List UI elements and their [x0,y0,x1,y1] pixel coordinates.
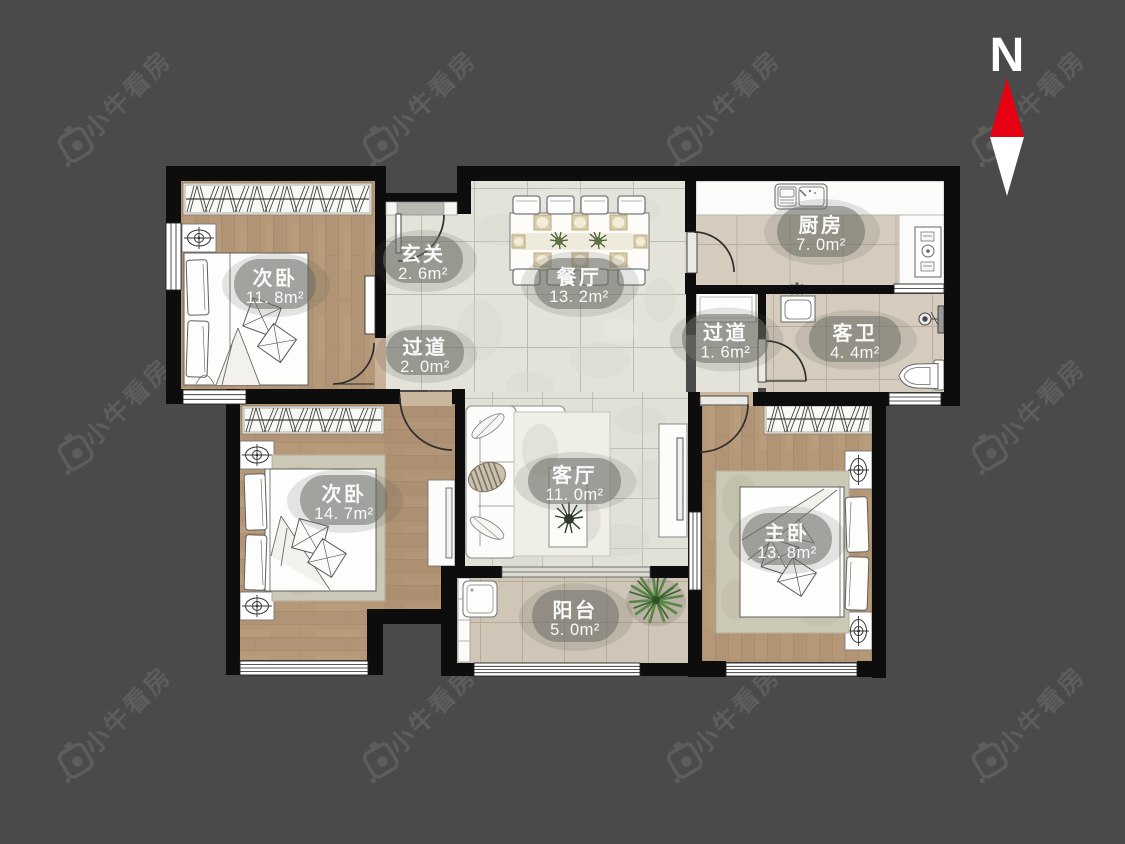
svg-text:餐厅: 餐厅 [557,265,602,289]
svg-text:过道: 过道 [403,335,448,359]
svg-text:1. 6m²: 1. 6m² [701,344,751,362]
svg-text:N: N [990,29,1025,82]
svg-text:阳台: 阳台 [553,598,598,622]
svg-text:厨房: 厨房 [799,213,844,237]
svg-text:11. 0m²: 11. 0m² [545,486,603,504]
svg-text:次卧: 次卧 [253,266,298,290]
svg-text:4. 4m²: 4. 4m² [830,344,880,362]
svg-text:过道: 过道 [703,321,748,345]
svg-text:5. 0m²: 5. 0m² [550,621,600,639]
svg-text:13. 8m²: 13. 8m² [757,544,816,562]
svg-text:客卫: 客卫 [832,321,878,345]
svg-text:7. 0m²: 7. 0m² [796,236,846,254]
svg-text:13. 2m²: 13. 2m² [549,288,608,306]
svg-text:主卧: 主卧 [765,521,810,545]
svg-text:次卧: 次卧 [322,482,367,506]
svg-text:11. 8m²: 11. 8m² [246,289,304,307]
svg-text:2. 0m²: 2. 0m² [400,358,450,376]
svg-text:客厅: 客厅 [551,463,597,487]
svg-text:2. 6m²: 2. 6m² [398,265,448,283]
svg-text:14. 7m²: 14. 7m² [314,505,373,523]
svg-text:玄关: 玄关 [401,242,446,266]
